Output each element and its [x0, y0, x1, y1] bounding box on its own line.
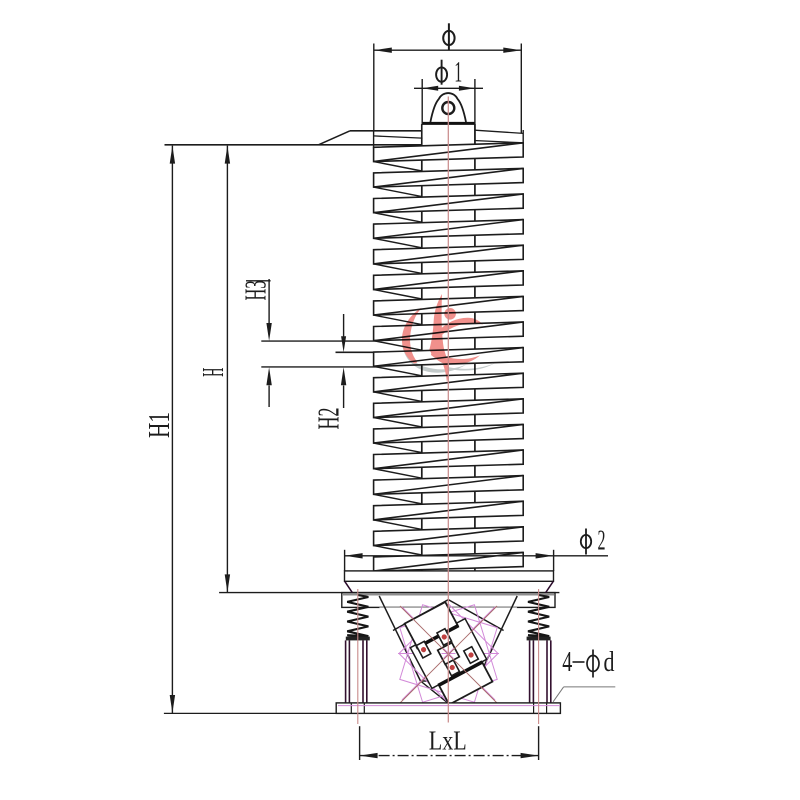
svg-text:1: 1: [454, 55, 462, 88]
svg-text:d: d: [604, 647, 615, 678]
svg-text:H1: H1: [141, 412, 176, 438]
svg-text:4: 4: [562, 647, 572, 678]
svg-text:H3: H3: [238, 281, 273, 301]
svg-text:LxL: LxL: [429, 726, 467, 756]
svg-text:2: 2: [598, 525, 606, 557]
svg-text:H2: H2: [311, 408, 346, 430]
svg-text:H: H: [195, 368, 230, 377]
